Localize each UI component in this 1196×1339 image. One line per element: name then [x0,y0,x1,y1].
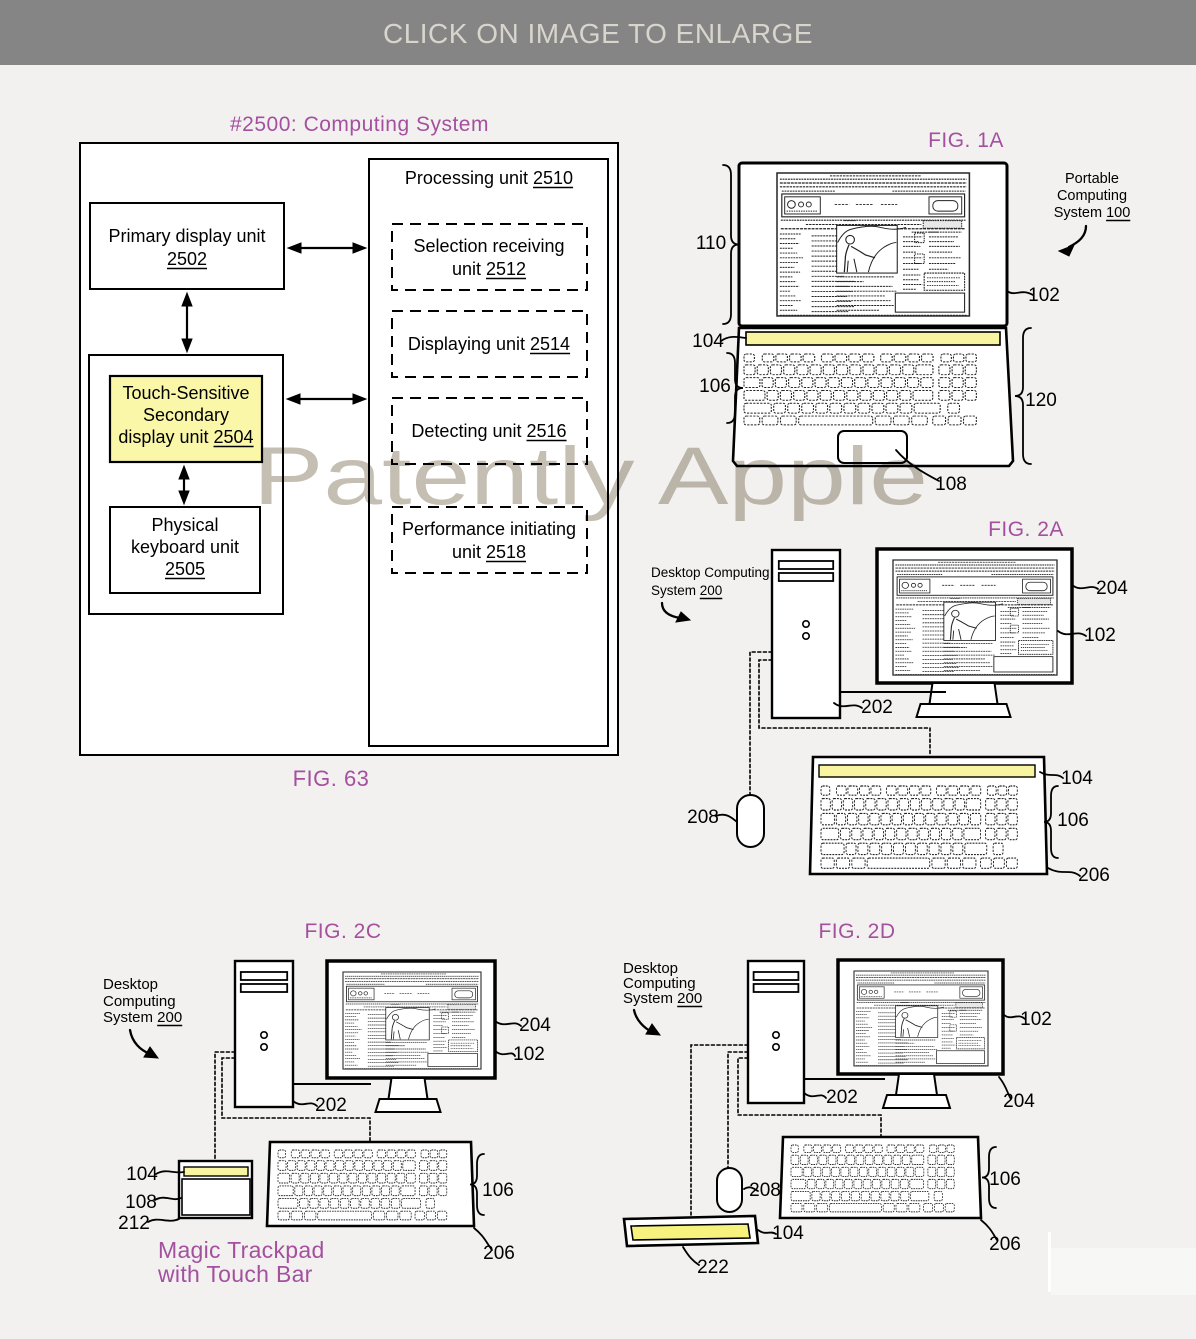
svg-text:Performance initiating: Performance initiating [402,519,576,539]
svg-text:104: 104 [126,1164,158,1185]
svg-text:2502: 2502 [167,249,207,269]
svg-text:206: 206 [483,1243,515,1264]
svg-text:Secondary: Secondary [143,405,229,425]
svg-text:206: 206 [1078,865,1110,886]
svg-text:Touch-Sensitive: Touch-Sensitive [122,383,249,403]
svg-text:222: 222 [697,1257,729,1278]
svg-text:System 200: System 200 [651,583,722,598]
svg-text:with Touch Bar: with Touch Bar [157,1261,313,1287]
svg-text:208: 208 [749,1180,781,1201]
svg-text:106: 106 [699,376,731,397]
svg-text:#2500: Computing System: #2500: Computing System [230,113,489,136]
svg-text:106: 106 [482,1180,514,1201]
svg-text:FIG. 2D: FIG. 2D [818,920,895,943]
svg-text:104: 104 [692,331,724,352]
svg-text:FIG. 2A: FIG. 2A [988,518,1064,541]
svg-text:204: 204 [519,1015,551,1036]
svg-text:108: 108 [935,474,967,495]
svg-text:108: 108 [125,1192,157,1213]
svg-text:110: 110 [696,233,726,254]
svg-text:System 200: System 200 [623,990,702,1007]
svg-text:202: 202 [315,1095,347,1116]
svg-text:Processing unit 2510: Processing unit 2510 [405,168,573,188]
svg-text:unit 2512: unit 2512 [452,259,526,279]
svg-text:120: 120 [1025,390,1057,411]
svg-text:System 200: System 200 [103,1009,182,1026]
svg-text:106: 106 [1057,810,1089,831]
svg-text:212: 212 [118,1213,150,1234]
svg-text:Computing: Computing [103,993,176,1010]
svg-text:2505: 2505 [165,559,205,579]
svg-text:202: 202 [861,697,893,718]
svg-text:Primary display unit: Primary display unit [108,226,265,246]
svg-text:Portable: Portable [1065,171,1119,187]
svg-text:CLICK ON IMAGE TO ENLARGE: CLICK ON IMAGE TO ENLARGE [383,18,813,49]
svg-text:keyboard unit: keyboard unit [131,537,239,557]
svg-text:System 100: System 100 [1054,205,1131,221]
svg-text:FIG. 1A: FIG. 1A [928,129,1004,152]
svg-text:Magic Trackpad: Magic Trackpad [158,1237,325,1263]
svg-text:Displaying unit 2514: Displaying unit 2514 [408,334,570,354]
svg-text:104: 104 [1061,768,1093,789]
svg-text:106: 106 [989,1169,1021,1190]
svg-text:Desktop Computing: Desktop Computing [651,565,770,580]
svg-text:206: 206 [989,1234,1021,1255]
svg-text:104: 104 [772,1223,804,1244]
svg-text:102: 102 [513,1044,545,1065]
svg-text:208: 208 [687,807,719,828]
svg-text:display unit 2504: display unit 2504 [118,427,253,447]
svg-text:FIG. 63: FIG. 63 [293,766,370,791]
svg-text:Patently Apple: Patently Apple [253,431,928,522]
svg-text:204: 204 [1096,578,1128,599]
svg-text:102: 102 [1084,625,1116,646]
svg-text:FIG. 2C: FIG. 2C [304,920,381,943]
svg-text:202: 202 [826,1087,858,1108]
svg-text:unit 2518: unit 2518 [452,542,526,562]
svg-text:Physical: Physical [151,515,218,535]
svg-text:Desktop: Desktop [103,976,158,993]
svg-text:Selection receiving: Selection receiving [413,236,564,256]
svg-text:Computing: Computing [1057,188,1127,204]
